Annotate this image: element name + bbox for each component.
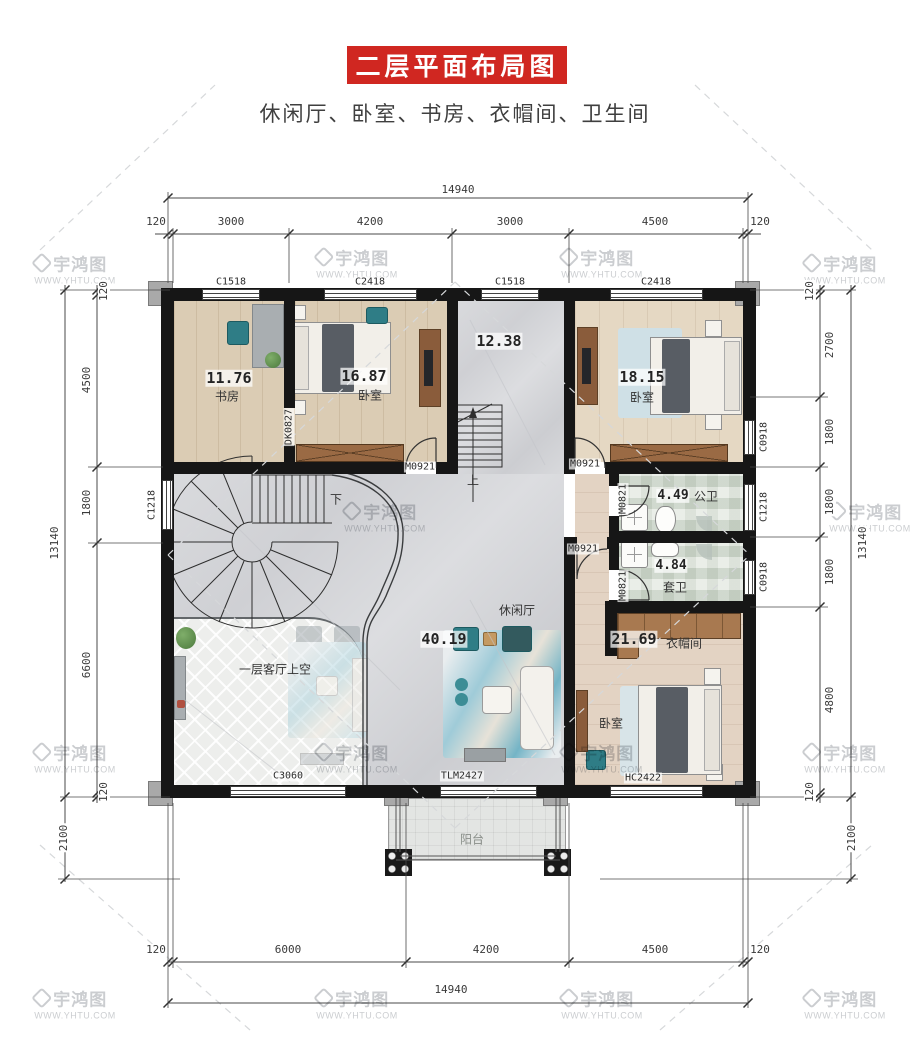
- page-title: 二层平面布局图: [347, 46, 567, 84]
- balcony-floor: [388, 798, 566, 860]
- dim-right: 1800: [824, 558, 836, 587]
- window-label-c1218-left: C1218: [147, 489, 158, 521]
- watermark: 宇鸿图WWW.YHTU.COM: [561, 245, 643, 280]
- dim-left-total: 13140: [49, 525, 61, 560]
- study-area: 11.76: [205, 370, 252, 387]
- door-label-m0821: M0821: [618, 570, 629, 602]
- yhtu-logo-icon: [558, 987, 579, 1008]
- dim-right: 2100: [846, 824, 858, 853]
- yhtu-logo-icon: [31, 252, 52, 273]
- balcony-name: 阳台: [459, 833, 485, 846]
- bedroom1-wardrobe: [296, 444, 404, 462]
- bedroom1-area: 16.87: [340, 368, 387, 385]
- dim-left: 120: [98, 280, 110, 302]
- window-c1518-hall: [481, 289, 539, 300]
- wall-between-baths: [614, 531, 743, 543]
- watermark: 宇鸿图WWW.YHTU.COM: [316, 986, 398, 1021]
- window-label-c0918: C0918: [759, 561, 770, 593]
- wall-lounge-suite: [564, 537, 575, 785]
- bedroom3-chair: [586, 750, 606, 770]
- dim-top: 3000: [496, 216, 525, 228]
- window-label-c2418: C2418: [354, 277, 386, 288]
- bedroom1-pillows: [293, 326, 309, 390]
- lounge-name: 休闲厅: [498, 604, 536, 617]
- void-plant: [176, 627, 196, 649]
- yhtu-logo-icon: [801, 252, 822, 273]
- dim-right: 1800: [824, 488, 836, 517]
- sliding-door-tlm2427: [440, 786, 537, 797]
- yhtu-logo-icon: [801, 741, 822, 762]
- window-label-c2418: C2418: [640, 277, 672, 288]
- window-label-c1218: C1218: [759, 491, 770, 523]
- bedroom1-chair: [366, 307, 388, 324]
- bedroom1-name: 卧室: [357, 389, 383, 402]
- bath-ensuite-area: 4.84: [654, 559, 687, 573]
- floor-plan-sheet: { "header": { "title": "二层平面布局图", "subti…: [0, 0, 910, 1037]
- lounge-side-table: [483, 632, 497, 646]
- dim-bottom: 6000: [274, 944, 303, 956]
- stair-up-label: 上: [466, 474, 480, 487]
- dim-bottom-total: 14940: [433, 984, 468, 996]
- dim-bottom: 120: [749, 944, 771, 956]
- bedroom2-monitor: [582, 348, 591, 384]
- yhtu-logo-icon: [313, 246, 334, 267]
- lounge-pouf: [455, 678, 468, 691]
- bedroom3-pillows: [704, 689, 720, 771]
- window-label-hc2422: HC2422: [624, 773, 662, 784]
- window-c1218-bath: [744, 484, 755, 531]
- study-chair: [227, 321, 249, 345]
- yhtu-logo-icon: [31, 987, 52, 1008]
- bath-public-area: 4.49: [656, 489, 689, 503]
- dim-top: 120: [145, 216, 167, 228]
- bedroom2-pillows: [724, 341, 740, 411]
- wall-cloakroom-left: [605, 601, 617, 656]
- window-c0918-ensuite: [744, 560, 755, 595]
- window-label-c0918: C0918: [759, 421, 770, 453]
- door-label-m0921: M0921: [567, 544, 599, 555]
- lounge-area: 40.19: [420, 631, 467, 648]
- balcony-column: [544, 849, 571, 876]
- dim-bottom: 120: [145, 944, 167, 956]
- floor-stair-hall: [458, 301, 564, 474]
- lounge-chaise-sofa: [520, 666, 554, 750]
- bedroom2-nightstand: [705, 413, 722, 430]
- watermark: 宇鸿图WWW.YHTU.COM: [316, 245, 398, 280]
- stair-hall-area: 12.38: [475, 333, 522, 350]
- wall-ensuite-cloakroom: [605, 601, 743, 613]
- stair-down-label: 下: [329, 493, 343, 506]
- window-c2418-bedroom2: [610, 289, 703, 300]
- watermark: 宇鸿图WWW.YHTU.COM: [34, 986, 116, 1021]
- dim-top: 4500: [641, 216, 670, 228]
- door-label-m0821: M0821: [618, 483, 629, 515]
- bedroom3-nightstand: [704, 668, 721, 685]
- bedroom1-monitor: [424, 350, 433, 386]
- wall-bedroom2-bottom: [605, 462, 743, 474]
- bedroom2-blanket: [662, 339, 690, 413]
- dim-left: 2100: [58, 824, 70, 853]
- bedroom3-blanket: [656, 687, 688, 773]
- bath-public-toilet: [655, 506, 676, 533]
- bath-ensuite-sink: [621, 541, 648, 568]
- cloakroom-name: 衣帽间: [665, 637, 703, 650]
- watermark: 宇鸿图WWW.YHTU.COM: [804, 740, 886, 775]
- wall-study-bedroom1: [284, 301, 295, 408]
- bedroom3-console: [576, 690, 588, 752]
- dim-top: 3000: [217, 216, 246, 228]
- wall-corridor-end: [607, 537, 619, 549]
- void-name: 一层客厅上空: [238, 663, 312, 676]
- door-label-m0921: M0921: [404, 462, 436, 473]
- window-c2418-bedroom1: [324, 289, 417, 300]
- window-c3060-void: [230, 786, 346, 797]
- wall-middle-horizontal: [161, 462, 406, 474]
- bedroom2-nightstand: [705, 320, 722, 337]
- door-label-tlm2427: TLM2427: [440, 771, 484, 782]
- window-c0918-bedroom2: [744, 420, 755, 455]
- dim-right: 4800: [824, 686, 836, 715]
- watermark: 宇鸿图WWW.YHTU.COM: [804, 986, 886, 1021]
- wall-exterior-right: [743, 288, 756, 798]
- page-subtitle: 休闲厅、卧室、书房、衣帽间、卫生间: [0, 98, 910, 128]
- watermark: 宇鸿图WWW.YHTU.COM: [829, 499, 910, 534]
- dim-right-total: 13140: [857, 525, 869, 560]
- dim-right: 2700: [824, 331, 836, 360]
- study-name: 书房: [214, 390, 240, 403]
- dim-top: 4200: [356, 216, 385, 228]
- cloakroom-area: 21.69: [610, 631, 657, 648]
- lounge-armchair: [502, 626, 532, 652]
- door-label-m0921: M0921: [569, 459, 601, 470]
- wall-exterior-left: [161, 288, 174, 798]
- dim-right: 120: [804, 280, 816, 302]
- watermark: 宇鸿图WWW.YHTU.COM: [561, 986, 643, 1021]
- window-label-c1518: C1518: [494, 277, 526, 288]
- window-c1218-left: [162, 480, 173, 530]
- bath-ensuite-tub: [651, 542, 679, 557]
- wall-bedroom1-hall: [447, 301, 458, 474]
- lounge-pouf: [455, 693, 468, 706]
- window-label-c3060: C3060: [272, 771, 304, 782]
- study-plant: [265, 352, 281, 368]
- balcony-column: [385, 849, 412, 876]
- window-c1518-study: [202, 289, 260, 300]
- dim-left: 120: [98, 781, 110, 803]
- yhtu-logo-icon: [31, 741, 52, 762]
- lounge-tv-stand: [464, 748, 506, 762]
- bedroom2-area: 18.15: [618, 369, 665, 386]
- bedroom3-name: 卧室: [598, 717, 624, 730]
- dim-bottom: 4500: [641, 944, 670, 956]
- door-label-dk0827: DK0827: [284, 408, 295, 446]
- dim-top-total: 14940: [440, 184, 475, 196]
- dim-left: 1800: [81, 489, 93, 518]
- dim-left: 4500: [81, 366, 93, 395]
- bedroom2-name: 卧室: [629, 391, 655, 404]
- bay-window-hc2422: [610, 786, 703, 797]
- yhtu-logo-icon: [801, 987, 822, 1008]
- bath-public-name: 公卫: [693, 490, 719, 503]
- yhtu-logo-icon: [313, 987, 334, 1008]
- void-deco: [177, 700, 185, 708]
- dim-right: 1800: [824, 418, 836, 447]
- window-label-c1518: C1518: [215, 277, 247, 288]
- watermark: 宇鸿图WWW.YHTU.COM: [804, 251, 886, 286]
- dim-right: 120: [804, 781, 816, 803]
- lounge-coffee-table: [482, 686, 512, 714]
- void-console: [174, 656, 186, 720]
- yhtu-logo-icon: [558, 246, 579, 267]
- wall-hall-bedroom2: [564, 301, 575, 474]
- dim-left: 6600: [81, 651, 93, 680]
- wall-middle-horizontal: [436, 462, 458, 474]
- bedroom2-wardrobe: [610, 444, 728, 462]
- watermark: 宇鸿图WWW.YHTU.COM: [34, 740, 116, 775]
- bath-ensuite-name: 套卫: [662, 581, 688, 594]
- dim-bottom: 4200: [472, 944, 501, 956]
- dim-top: 120: [749, 216, 771, 228]
